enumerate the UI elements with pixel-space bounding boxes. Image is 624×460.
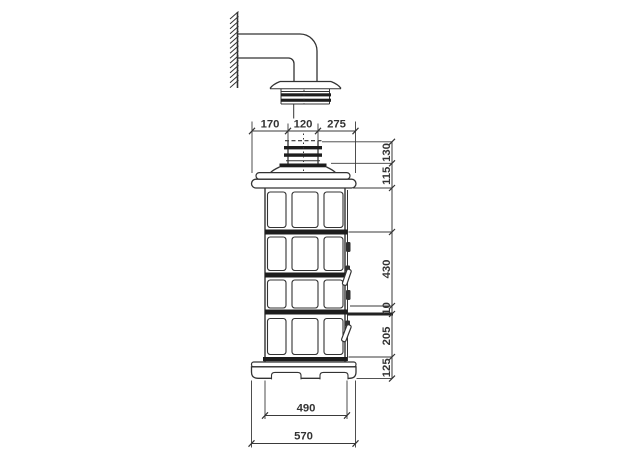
- tile: [268, 192, 287, 228]
- dim-label-570: 570: [294, 431, 313, 443]
- dim-label-275: 275: [327, 119, 346, 131]
- base-foot-cutout: [272, 372, 302, 379]
- joint-band: [265, 230, 348, 235]
- door-hinge: [346, 242, 351, 252]
- flue-elbow-pipe: [238, 34, 318, 82]
- stove-base: [252, 362, 357, 380]
- tile: [268, 319, 287, 355]
- dim-490: 490: [262, 381, 350, 420]
- stove-body: [263, 188, 352, 362]
- base-foot-cutout: [320, 372, 348, 379]
- tile: [292, 319, 318, 355]
- dim-label-115: 115: [381, 167, 393, 185]
- joint-band: [265, 273, 348, 278]
- base-joint-band: [263, 357, 347, 361]
- dim-label-490: 490: [297, 403, 316, 415]
- tile: [324, 237, 343, 271]
- stove-crown: [252, 173, 357, 188]
- dim-label-430: 430: [381, 260, 393, 279]
- dim-label-120: 120: [294, 119, 313, 131]
- wall: [230, 12, 239, 89]
- dim-chain-right: 130 115 430 10 205 125: [322, 139, 395, 382]
- door-hinge: [346, 290, 351, 300]
- stove-flue-stub: [271, 134, 336, 173]
- tile: [324, 280, 343, 308]
- tile: [292, 280, 318, 308]
- dim-label-170: 170: [261, 119, 280, 131]
- dim-label-130: 130: [381, 143, 393, 162]
- joint-band: [265, 310, 348, 315]
- flue-collar: [270, 82, 341, 119]
- dim-label-125: 125: [381, 358, 393, 377]
- tile: [324, 192, 343, 228]
- tile: [268, 280, 287, 308]
- technical-drawing-canvas: 170 120 275: [0, 0, 624, 460]
- tile: [324, 319, 343, 355]
- dim-label-205: 205: [381, 327, 393, 346]
- tile: [292, 192, 318, 228]
- stove-elevation-drawing: 170 120 275: [0, 0, 624, 460]
- tile: [268, 237, 287, 271]
- tile: [292, 237, 318, 271]
- dim-label-10: 10: [381, 302, 393, 315]
